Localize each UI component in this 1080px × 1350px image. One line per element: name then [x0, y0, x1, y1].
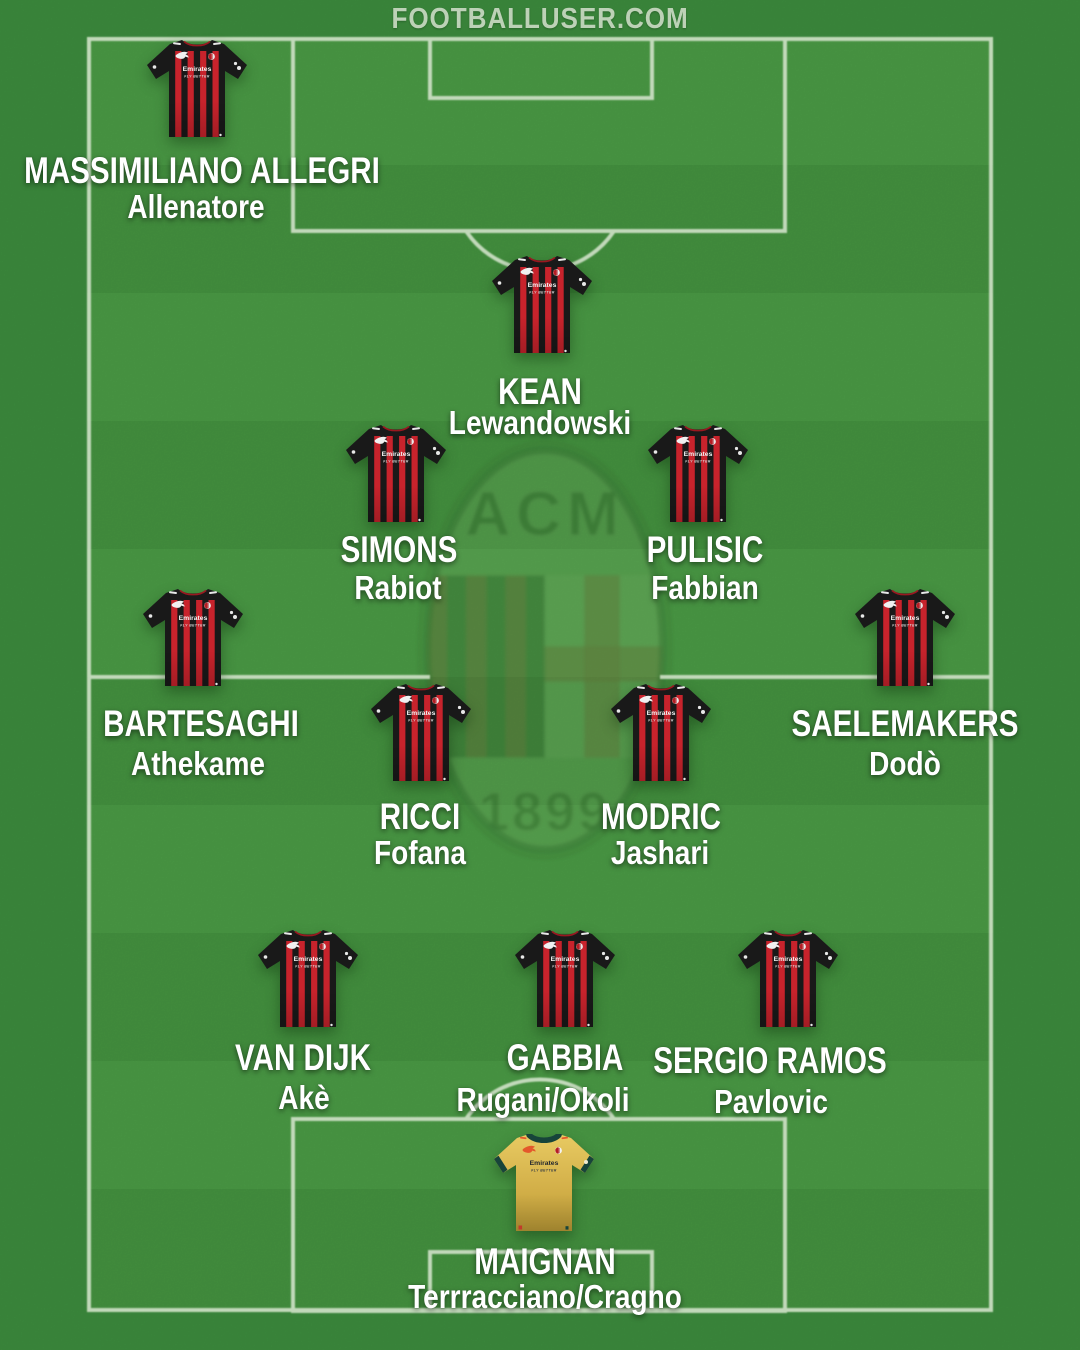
player-name: VAN DIJK	[218, 1037, 388, 1079]
player-saelemakers[interactable]: SAELEMAKERSDodò	[853, 589, 957, 689]
player-name-text: MASSIMILIANO ALLEGRI	[24, 150, 380, 192]
player-modric[interactable]: MODRICJashari	[609, 684, 713, 784]
player-name-text: PULISIC	[647, 529, 764, 571]
player-alt-name-text: Fofana	[374, 834, 466, 872]
outfield-jersey-icon	[513, 930, 617, 1030]
player-maignan[interactable]: MAIGNANTerrracciano/Cragno	[492, 1134, 596, 1234]
player-name-text: MODRIC	[601, 796, 721, 838]
player-ricci[interactable]: RICCIFofana	[369, 684, 473, 784]
player-alt-name: Athekame	[119, 745, 277, 783]
outfield-jersey-icon	[145, 40, 249, 140]
player-kean[interactable]: KEANLewandowski	[490, 256, 594, 356]
site-banner: FOOTBALLUSER.COM	[0, 0, 1080, 37]
player-name: BARTESAGHI	[79, 703, 324, 745]
player-alt-name: Rugani/Okoli	[441, 1081, 645, 1119]
outfield-jersey-icon	[369, 684, 473, 784]
player-name-text: RICCI	[380, 796, 461, 838]
outfield-jersey-icon	[609, 684, 713, 784]
outfield-jersey-icon	[344, 425, 448, 525]
player-alt-name: Lewandowski	[433, 404, 648, 442]
player-name-text: SAELEMAKERS	[792, 703, 1019, 745]
player-alt-name-text: Jashari	[611, 834, 709, 872]
player-name-text: BARTESAGHI	[103, 703, 299, 745]
player-name: SERGIO RAMOS	[624, 1040, 916, 1082]
player-alt-name-text: Athekame	[131, 745, 265, 783]
player-name: MASSIMILIANO ALLEGRI	[0, 150, 424, 192]
player-pulisic[interactable]: PULISICFabbian	[646, 425, 750, 525]
player-alt-name-text: Allenatore	[127, 188, 264, 226]
player-name-text: VAN DIJK	[235, 1037, 371, 1079]
player-alt-name: Fabbian	[642, 569, 769, 607]
player-alt-name: Dodò	[863, 745, 947, 783]
player-name-text: MAIGNAN	[474, 1241, 615, 1283]
player-alt-name-text: Terrracciano/Cragno	[408, 1278, 682, 1316]
player-bartesaghi[interactable]: BARTESAGHIAthekame	[141, 589, 245, 689]
player-simons[interactable]: SIMONSRabiot	[344, 425, 448, 525]
player-alt-name-text: Lewandowski	[449, 404, 631, 442]
player-name: RICCI	[370, 796, 471, 838]
outfield-jersey-icon	[141, 589, 245, 689]
goalkeeper-jersey-icon	[492, 1134, 596, 1234]
player-name: SIMONS	[326, 529, 472, 571]
formation-graphic: FOOTBALLUSER.COM	[0, 0, 1080, 1350]
player-alt-name: Akè	[274, 1079, 335, 1117]
player-van-dijk[interactable]: VAN DIJKAkè	[256, 930, 360, 1030]
outfield-jersey-icon	[736, 930, 840, 1030]
player-alt-name-text: Akè	[278, 1079, 329, 1117]
player-alt-name-text: Rugani/Okoli	[457, 1081, 630, 1119]
player-alt-name: Jashari	[602, 834, 718, 872]
outfield-jersey-icon	[646, 425, 750, 525]
player-alt-name: Rabiot	[347, 569, 450, 607]
player-alt-name: Terrracciano/Cragno	[384, 1278, 706, 1316]
outfield-jersey-icon	[853, 589, 957, 689]
player-sergio-ramos[interactable]: SERGIO RAMOSPavlovic	[736, 930, 840, 1030]
player-name: SAELEMAKERS	[763, 703, 1047, 745]
player-name-text: GABBIA	[507, 1037, 624, 1079]
player-name: GABBIA	[492, 1037, 638, 1079]
player-allegri[interactable]: MASSIMILIANO ALLEGRIAllenatore	[145, 40, 249, 140]
player-alt-name: Pavlovic	[704, 1083, 838, 1121]
player-alt-name-text: Fabbian	[651, 569, 759, 607]
player-alt-name: Allenatore	[115, 188, 276, 226]
player-alt-name-text: Pavlovic	[714, 1083, 828, 1121]
player-name-text: SIMONS	[341, 529, 458, 571]
outfield-jersey-icon	[256, 930, 360, 1030]
player-name: MAIGNAN	[457, 1241, 634, 1283]
site-title: FOOTBALLUSER.COM	[391, 0, 688, 38]
player-alt-name: Fofana	[366, 834, 474, 872]
player-name: PULISIC	[632, 529, 778, 571]
player-name: MODRIC	[586, 796, 736, 838]
outfield-jersey-icon	[490, 256, 594, 356]
player-alt-name-text: Dodò	[869, 745, 941, 783]
player-alt-name-text: Rabiot	[354, 569, 441, 607]
player-name-text: SERGIO RAMOS	[653, 1040, 887, 1082]
player-gabbia[interactable]: GABBIARugani/Okoli	[513, 930, 617, 1030]
